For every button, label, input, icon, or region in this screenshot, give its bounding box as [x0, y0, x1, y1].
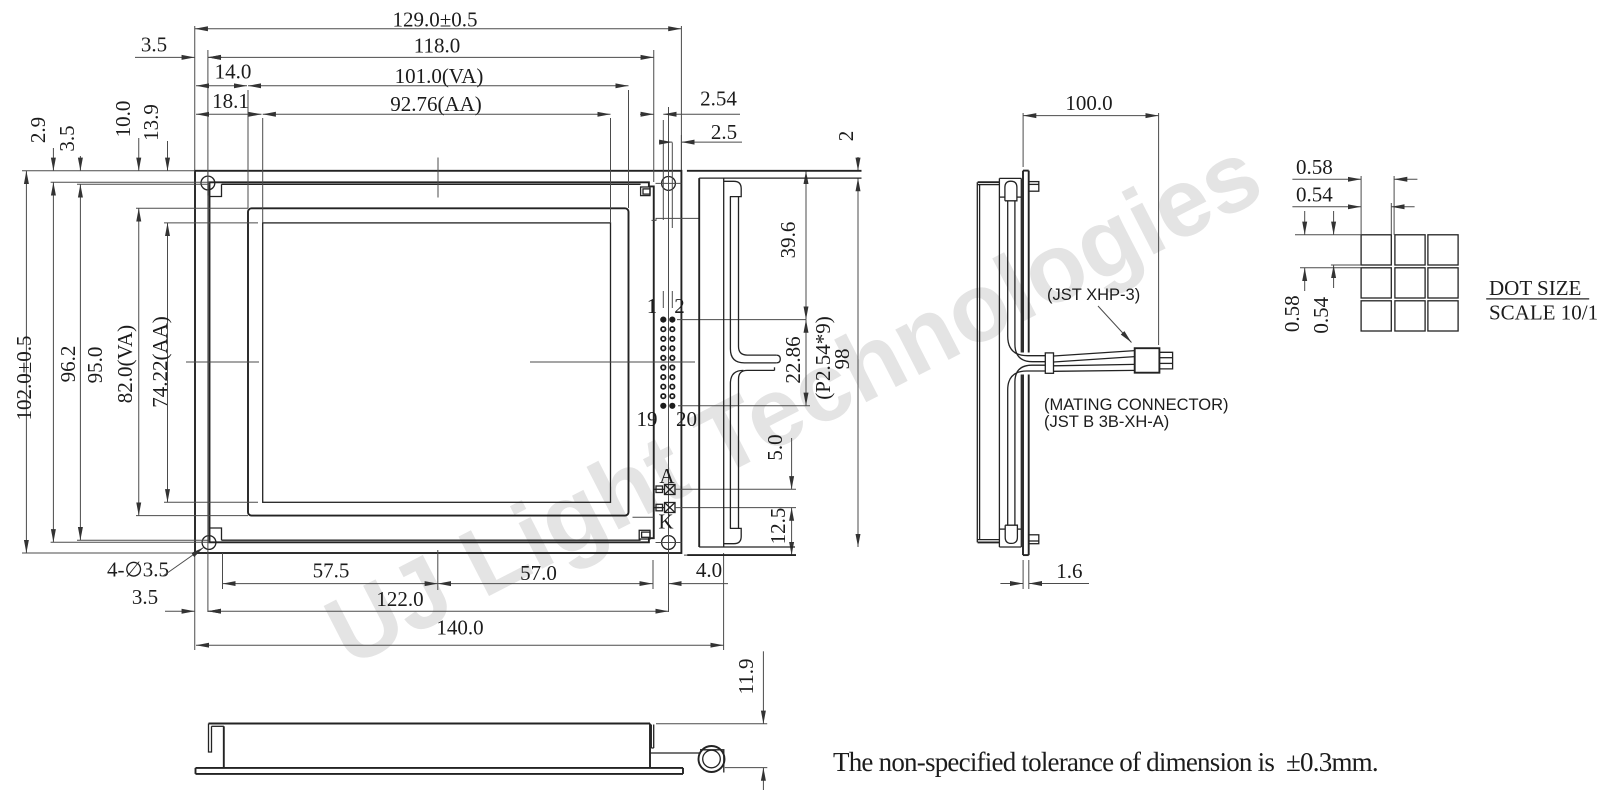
svg-text:3.5: 3.5: [132, 585, 158, 609]
svg-text:39.6: 39.6: [776, 222, 800, 259]
svg-text:5.0: 5.0: [763, 434, 787, 460]
svg-text:0.54: 0.54: [1309, 296, 1333, 333]
svg-text:13.9: 13.9: [139, 104, 163, 141]
svg-text:57.0: 57.0: [520, 561, 557, 585]
svg-text:19: 19: [637, 407, 658, 431]
svg-text:K: K: [658, 510, 673, 534]
svg-text:DOT SIZE: DOT SIZE: [1489, 276, 1581, 300]
svg-text:2: 2: [674, 294, 685, 318]
svg-text:14.0: 14.0: [215, 60, 252, 84]
svg-text:2.54: 2.54: [700, 87, 737, 111]
svg-text:12.5: 12.5: [766, 508, 790, 545]
svg-text:2: 2: [834, 131, 858, 142]
svg-text:22.86: 22.86: [781, 336, 805, 383]
svg-text:(MATING CONNECTOR): (MATING CONNECTOR): [1044, 396, 1229, 414]
svg-text:140.0: 140.0: [436, 616, 483, 640]
svg-text:1: 1: [647, 294, 658, 318]
svg-text:98: 98: [830, 349, 854, 370]
svg-text:101.0(VA): 101.0(VA): [395, 64, 484, 88]
svg-text:96.2: 96.2: [56, 346, 80, 383]
svg-text:SCALE 10/1: SCALE 10/1: [1489, 301, 1598, 325]
svg-text:0.58: 0.58: [1280, 295, 1304, 332]
svg-text:3.5: 3.5: [141, 33, 167, 57]
svg-text:1.6: 1.6: [1056, 559, 1082, 583]
svg-text:11.9: 11.9: [734, 659, 758, 695]
svg-text:122.0: 122.0: [376, 587, 423, 611]
svg-text:18.1: 18.1: [212, 89, 249, 113]
svg-text:2.5: 2.5: [711, 120, 737, 144]
svg-text:0.54: 0.54: [1296, 183, 1333, 207]
svg-text:2.9: 2.9: [26, 117, 50, 143]
svg-text:100.0: 100.0: [1065, 91, 1112, 115]
svg-text:0.58: 0.58: [1296, 155, 1333, 179]
svg-text:4-∅3.5: 4-∅3.5: [107, 558, 169, 582]
svg-text:(JST B 3B-XH-A): (JST B 3B-XH-A): [1044, 413, 1169, 431]
svg-text:95.0: 95.0: [83, 347, 107, 384]
svg-text:A: A: [659, 464, 675, 488]
svg-text:The non-specified tolerance of: The non-specified tolerance of dimension…: [833, 747, 1378, 777]
svg-text:3.5: 3.5: [55, 125, 79, 151]
svg-text:74.22(AA): 74.22(AA): [148, 316, 172, 408]
svg-text:129.0±0.5: 129.0±0.5: [392, 8, 477, 32]
svg-text:(JST XHP-3): (JST XHP-3): [1047, 286, 1140, 304]
svg-text:118.0: 118.0: [414, 34, 460, 58]
svg-text:4.0: 4.0: [696, 558, 722, 582]
svg-text:92.76(AA): 92.76(AA): [390, 92, 482, 116]
svg-text:102.0±0.5: 102.0±0.5: [12, 335, 36, 420]
svg-text:57.5: 57.5: [313, 559, 350, 583]
svg-text:10.0: 10.0: [111, 101, 135, 138]
svg-text:82.0(VA): 82.0(VA): [113, 325, 137, 403]
svg-text:20: 20: [676, 407, 697, 431]
